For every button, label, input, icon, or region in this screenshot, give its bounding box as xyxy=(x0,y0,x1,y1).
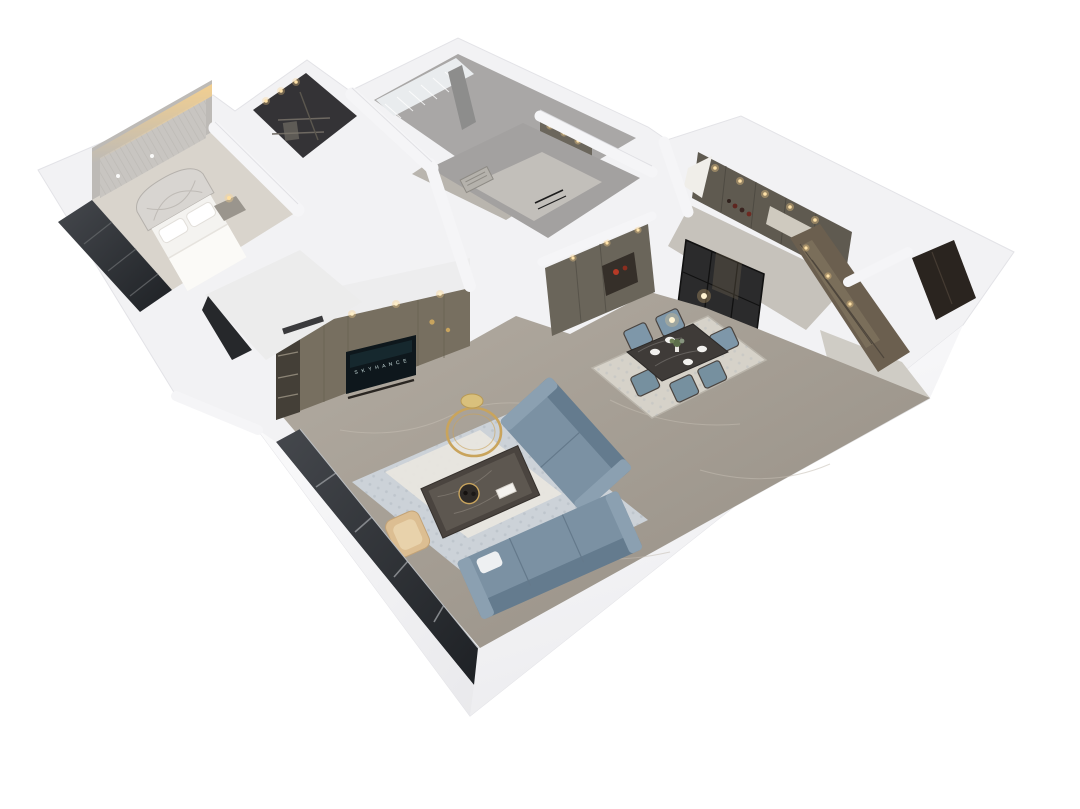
folded-clothes xyxy=(283,121,299,141)
downlight xyxy=(826,274,829,277)
table-lamp xyxy=(227,196,231,200)
gold-decor-box xyxy=(429,319,434,324)
gold-stool xyxy=(461,394,483,408)
downlight xyxy=(264,99,268,103)
downlight xyxy=(804,246,807,249)
downlight xyxy=(279,89,283,93)
gold-decor-box xyxy=(446,328,450,332)
downlight xyxy=(294,80,298,84)
downlight xyxy=(605,241,608,244)
floorplan-render: S K Y H A N C E xyxy=(0,0,1080,809)
ceiling-spotlight xyxy=(116,174,120,178)
red-decor xyxy=(623,266,628,271)
downlight xyxy=(571,256,574,259)
ceiling-spotlight xyxy=(150,154,154,158)
red-decor xyxy=(613,269,619,275)
downlight xyxy=(848,302,851,305)
plate xyxy=(650,349,660,355)
plate xyxy=(683,359,693,365)
floorplan-svg: S K Y H A N C E xyxy=(0,0,1080,809)
downlight xyxy=(636,228,639,231)
plate xyxy=(697,346,707,352)
